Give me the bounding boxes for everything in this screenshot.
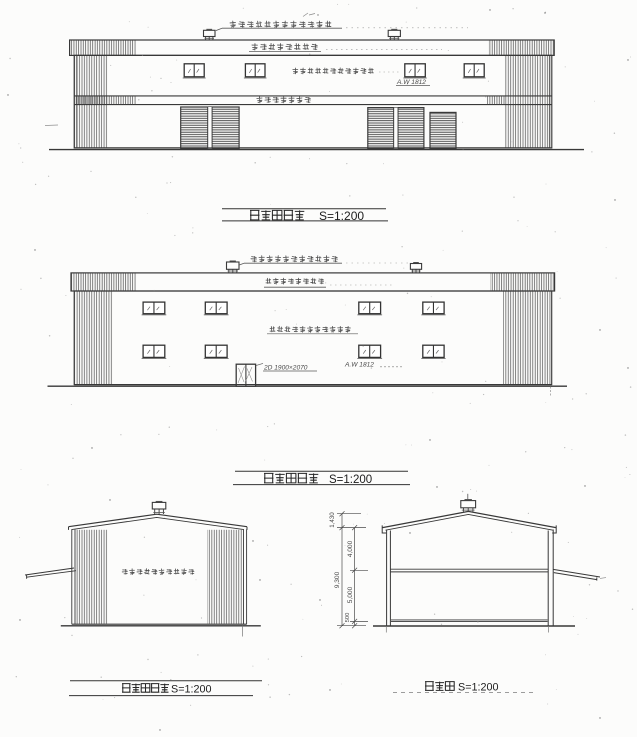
svg-text:5,000: 5,000 [347, 586, 354, 603]
svg-text:2D 1900×2070: 2D 1900×2070 [263, 365, 308, 372]
svg-text:4,000: 4,000 [347, 540, 354, 557]
svg-text:500: 500 [345, 613, 351, 623]
svg-text:A.W 1812: A.W 1812 [396, 79, 426, 86]
svg-text:1,430: 1,430 [329, 512, 336, 528]
svg-text:A.W 1812: A.W 1812 [344, 362, 374, 369]
svg-text:S=1:200: S=1:200 [458, 681, 499, 693]
svg-text:S=1:200: S=1:200 [171, 684, 212, 696]
svg-text:9,300: 9,300 [334, 571, 341, 588]
